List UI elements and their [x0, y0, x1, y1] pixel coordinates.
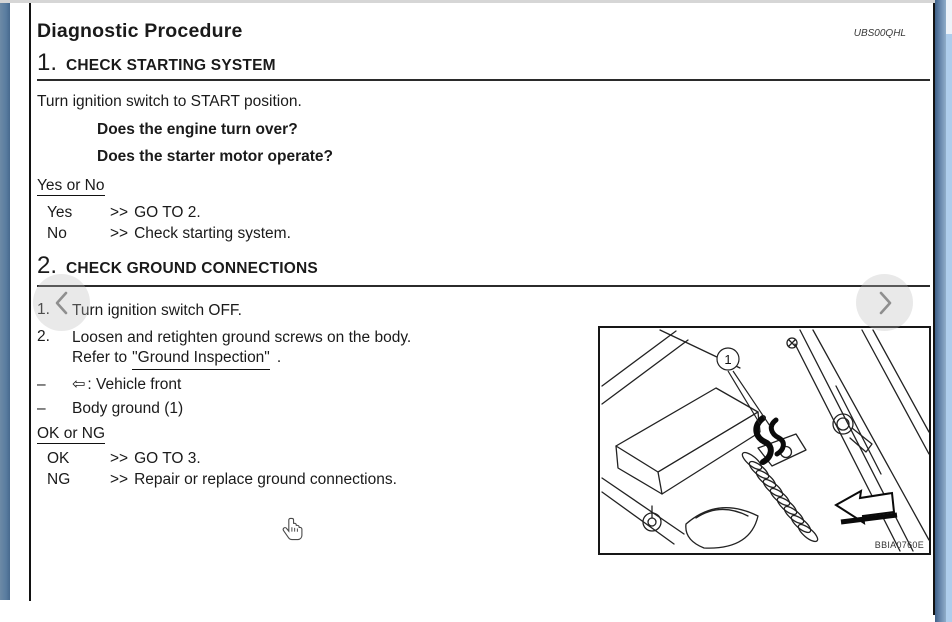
- step-text: Turn ignition switch OFF.: [72, 301, 242, 321]
- scrollbar-track[interactable]: [946, 0, 952, 622]
- scrollbar-track-top: [946, 0, 952, 34]
- section-2-heading: 2. CHECK GROUND CONNECTIONS: [37, 252, 318, 280]
- left-page-edge: [0, 3, 10, 600]
- section-1-title: CHECK STARTING SYSTEM: [66, 57, 276, 75]
- note-dash: –: [37, 376, 72, 394]
- page-border-left: [29, 3, 31, 601]
- outcome-arrow: >>: [110, 225, 128, 243]
- page-title: Diagnostic Procedure: [37, 20, 243, 43]
- section-1-heading: 1. CHECK STARTING SYSTEM: [37, 49, 276, 77]
- decision-label-ok-ng: OK or NG: [37, 425, 105, 443]
- outcome-row-ng: NG >> Repair or replace ground connectio…: [47, 471, 397, 489]
- step-number: 2.: [37, 328, 72, 370]
- document-code: UBS00QHL: [854, 28, 906, 39]
- ground-inspection-link[interactable]: "Ground Inspection": [132, 348, 270, 370]
- note-text: Body ground (1): [72, 400, 183, 418]
- note-text: : Vehicle front: [87, 376, 181, 394]
- section-1-intro: Turn ignition switch to START position.: [37, 93, 302, 111]
- ground-location-figure: 1 BBIA0760E: [598, 326, 931, 555]
- refer-prefix: Refer to: [72, 348, 127, 368]
- outcome-row-no: No >> Check starting system.: [47, 225, 291, 243]
- outcome-option: No: [47, 225, 110, 243]
- section-2-divider: [37, 285, 930, 287]
- hand-pointer-icon: [281, 516, 303, 544]
- service-manual-viewer: Diagnostic Procedure UBS00QHL 1. CHECK S…: [0, 0, 952, 622]
- outcome-arrow: >>: [110, 471, 128, 489]
- note-dash: –: [37, 400, 72, 418]
- step-2: 2. Loosen and retighten ground screws on…: [37, 328, 411, 370]
- outcome-arrow: >>: [110, 204, 128, 222]
- outcome-action: Check starting system.: [134, 225, 291, 243]
- outcome-option: NG: [47, 471, 110, 489]
- outcome-row-ok: OK >> GO TO 3.: [47, 450, 201, 468]
- section-1-divider: [37, 79, 930, 81]
- question-starter-motor: Does the starter motor operate?: [97, 148, 333, 166]
- note-vehicle-front: – ⇦ : Vehicle front: [37, 374, 181, 394]
- figure-callout-1: 1: [724, 352, 731, 367]
- refer-suffix: .: [277, 348, 281, 368]
- question-engine-turn-over: Does the engine turn over?: [97, 121, 298, 139]
- previous-page-button[interactable]: [33, 274, 90, 331]
- chevron-right-icon: [874, 288, 896, 318]
- top-window-strip: [0, 0, 952, 3]
- engine-bay-illustration: 1: [600, 328, 929, 553]
- outcome-action: GO TO 2.: [134, 204, 201, 222]
- outcome-row-yes: Yes >> GO TO 2.: [47, 204, 201, 222]
- outcome-action: GO TO 3.: [134, 450, 201, 468]
- vehicle-front-arrow-icon: ⇦: [72, 374, 85, 393]
- chevron-left-icon: [51, 288, 73, 318]
- outcome-option: OK: [47, 450, 110, 468]
- outcome-action: Repair or replace ground connections.: [134, 471, 397, 489]
- figure-code: BBIA0760E: [875, 540, 924, 550]
- step-text-line: Loosen and retighten ground screws on th…: [72, 329, 411, 346]
- step-text: Loosen and retighten ground screws on th…: [72, 328, 411, 370]
- note-body-ground: – Body ground (1): [37, 400, 183, 418]
- hand-pointer-cursor: [281, 516, 303, 544]
- right-page-edge: [935, 0, 946, 622]
- section-1-number: 1.: [37, 49, 57, 77]
- section-2-title: CHECK GROUND CONNECTIONS: [66, 260, 318, 278]
- outcome-arrow: >>: [110, 450, 128, 468]
- decision-label-yes-no: Yes or No: [37, 177, 105, 195]
- next-page-button[interactable]: [856, 274, 913, 331]
- refer-line: Refer to "Ground Inspection" .: [72, 348, 411, 370]
- figure-vehicle-front-arrow-icon: [836, 491, 897, 523]
- outcome-option: Yes: [47, 204, 110, 222]
